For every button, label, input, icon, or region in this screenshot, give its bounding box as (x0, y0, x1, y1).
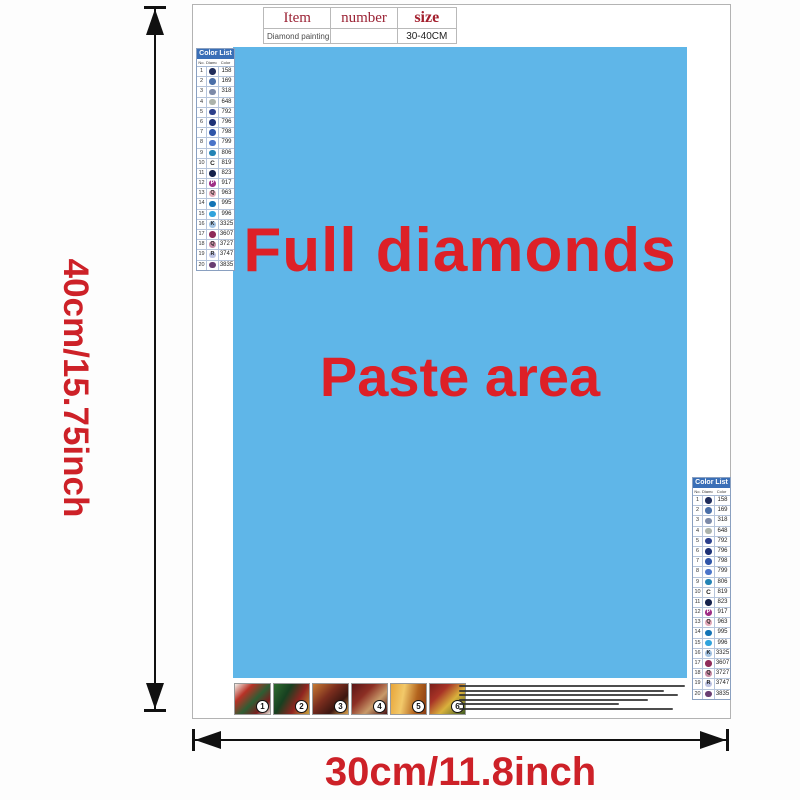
color-list-row: 2 169 (197, 77, 234, 87)
step-number-badge: 3 (334, 700, 347, 713)
color-row-number: 12 (197, 179, 207, 188)
diamond-symbol-icon: Q (703, 618, 715, 627)
color-row-number: 11 (197, 169, 207, 178)
color-row-number: 1 (197, 67, 207, 76)
instructions-text-block (459, 685, 687, 713)
dmc-color-code: 792 (715, 537, 730, 546)
color-row-number: 15 (693, 639, 703, 648)
dmc-color-code: 806 (219, 149, 234, 158)
color-list-row: 5 792 (693, 537, 730, 547)
diamond-symbol-icon: R (207, 250, 219, 259)
dmc-color-code: 799 (219, 138, 234, 147)
color-row-number: 8 (197, 138, 207, 147)
diamond-symbol-icon (207, 108, 219, 117)
diamond-symbol-icon: C (207, 159, 219, 168)
color-list-row: 9 806 (693, 578, 730, 588)
color-list-row: 14 995 (197, 199, 234, 209)
color-list-row: 8 799 (197, 138, 234, 148)
color-list-row: 3 318 (197, 87, 234, 97)
color-row-number: 20 (693, 690, 703, 699)
color-row-number: 5 (693, 537, 703, 546)
color-list-row: 19 R 3747 (197, 250, 234, 260)
color-list-row: 11 823 (693, 598, 730, 608)
item-table-data-row: Diamond painting 30-40CM (264, 29, 457, 44)
color-list-row: 6 796 (197, 118, 234, 128)
dmc-color-code: 158 (715, 496, 730, 505)
color-row-number: 5 (197, 108, 207, 117)
color-list-left: Color List No. Diamond Color 1 158 2 169… (196, 48, 235, 271)
color-row-number: 18 (693, 669, 703, 678)
diamond-symbol-icon (207, 87, 219, 96)
diamond-symbol-icon (207, 199, 219, 208)
diamond-symbol-icon (207, 98, 219, 107)
color-list-row: 14 995 (693, 628, 730, 638)
color-list-row: 16 K 3325 (693, 649, 730, 659)
dmc-color-code: 318 (715, 516, 730, 525)
dmc-color-code: 963 (715, 618, 730, 627)
color-list-right: Color List No. Diamond Color 1 158 2 169… (692, 477, 731, 700)
step-number-badge: 5 (412, 700, 425, 713)
dmc-color-code: 169 (219, 77, 234, 86)
dmc-color-code: 3747 (715, 679, 730, 688)
color-row-number: 9 (197, 149, 207, 158)
dmc-color-code: 3727 (219, 240, 234, 249)
col-color-label: Color (713, 488, 730, 495)
dmc-color-code: 3835 (219, 261, 234, 270)
color-row-number: 13 (693, 618, 703, 627)
dmc-color-code: 917 (219, 179, 234, 188)
dmc-color-code: 995 (219, 199, 234, 208)
step-thumbnail: 2 (273, 683, 310, 715)
col-no-label: No. (693, 488, 702, 495)
color-row-number: 15 (197, 210, 207, 219)
color-list-row: 1 158 (693, 496, 730, 506)
color-list-row: 18 Q 3727 (693, 669, 730, 679)
step-thumbnail: 1 (234, 683, 271, 715)
color-list-subheader: No. Diamond Color (693, 488, 730, 496)
color-list-row: 20 3835 (197, 261, 234, 270)
color-list-subheader: No. Diamond Color (197, 59, 234, 67)
dmc-color-code: 796 (715, 547, 730, 556)
color-list-row: 1 158 (197, 67, 234, 77)
color-list-row: 13 Q 963 (197, 189, 234, 199)
color-list-row: 6 796 (693, 547, 730, 557)
dmc-color-code: 158 (219, 67, 234, 76)
dmc-color-code: 799 (715, 567, 730, 576)
color-row-number: 17 (693, 659, 703, 668)
color-row-number: 11 (693, 598, 703, 607)
arrow-line (154, 9, 156, 709)
color-list-title: Color List (693, 478, 730, 488)
diamond-symbol-icon (207, 67, 219, 76)
diamond-symbol-icon (207, 210, 219, 219)
color-list-row: 12 P 917 (197, 179, 234, 189)
diamond-symbol-icon (703, 537, 715, 546)
color-row-number: 3 (693, 516, 703, 525)
diamond-symbol-icon: P (207, 179, 219, 188)
diamond-symbol-icon (703, 659, 715, 668)
color-list-row: 3 318 (693, 516, 730, 526)
diamond-symbol-icon (207, 118, 219, 127)
paste-area: Full diamonds Paste area (233, 47, 687, 678)
diamond-symbol-icon (207, 138, 219, 147)
color-row-number: 9 (693, 578, 703, 587)
color-list-row: 10 C 819 (693, 588, 730, 598)
item-size-table: Item number size Diamond painting 30-40C… (263, 7, 457, 44)
color-list-title: Color List (197, 49, 234, 59)
color-row-number: 4 (197, 98, 207, 107)
arrowhead-right-icon (700, 731, 726, 749)
diamond-symbol-icon (703, 639, 715, 648)
col-no-label: No. (197, 59, 206, 66)
diamond-symbol-icon (207, 128, 219, 137)
diamond-symbol-icon (207, 230, 219, 239)
color-row-number: 17 (197, 230, 207, 239)
instruction-step-thumbnails: 1 2 3 4 5 6 (234, 683, 466, 715)
color-row-number: 14 (197, 199, 207, 208)
color-row-number: 8 (693, 567, 703, 576)
item-name-cell: Diamond painting (264, 29, 331, 44)
color-row-number: 14 (693, 628, 703, 637)
color-list-row: 17 3607 (693, 659, 730, 669)
color-row-number: 3 (197, 87, 207, 96)
color-list-row: 20 3835 (693, 690, 730, 699)
diamond-symbol-icon (207, 149, 219, 158)
diamond-symbol-icon (703, 690, 715, 699)
dmc-color-code: 3325 (219, 220, 234, 229)
dmc-color-code: 648 (219, 98, 234, 107)
diamond-symbol-icon (207, 261, 219, 270)
diamond-symbol-icon (703, 496, 715, 505)
diamond-symbol-icon: P (703, 608, 715, 617)
dmc-color-code: 3835 (715, 690, 730, 699)
dmc-color-code: 798 (219, 128, 234, 137)
color-list-row: 11 823 (197, 169, 234, 179)
color-list-row: 19 R 3747 (693, 679, 730, 689)
col-diamond-label: Diamond (702, 488, 713, 495)
col-diamond-label: Diamond (206, 59, 217, 66)
dmc-color-code: 819 (219, 159, 234, 168)
color-row-number: 2 (197, 77, 207, 86)
diamond-symbol-icon (207, 77, 219, 86)
instruction-text-line (459, 685, 685, 687)
dmc-color-code: 792 (219, 108, 234, 117)
diamond-symbol-icon (703, 628, 715, 637)
instruction-text-line (459, 694, 678, 696)
step-number-badge: 1 (256, 700, 269, 713)
color-row-number: 20 (197, 261, 207, 270)
item-header-cell: Item (264, 8, 331, 29)
color-list-row: 18 Q 3727 (197, 240, 234, 250)
arrow-end-cap (144, 709, 166, 712)
color-list-row: 7 798 (197, 128, 234, 138)
color-row-number: 10 (197, 159, 207, 168)
color-list-row: 17 3607 (197, 230, 234, 240)
diamond-symbol-icon: K (703, 649, 715, 658)
diamond-symbol-icon: Q (703, 669, 715, 678)
diamond-symbol-icon (703, 557, 715, 566)
arrow-end-cap (726, 729, 729, 751)
color-list-row: 4 648 (693, 527, 730, 537)
width-dimension-label: 30cm/11.8inch (192, 750, 729, 795)
dmc-color-code: 917 (715, 608, 730, 617)
dmc-color-code: 648 (715, 527, 730, 536)
step-number-badge: 2 (295, 700, 308, 713)
color-row-number: 6 (693, 547, 703, 556)
height-dimension-arrow (144, 6, 166, 712)
color-list-row: 9 806 (197, 149, 234, 159)
color-list-row: 7 798 (693, 557, 730, 567)
color-list-row: 10 C 819 (197, 159, 234, 169)
dmc-color-code: 819 (715, 588, 730, 597)
color-list-row: 2 169 (693, 506, 730, 516)
color-row-number: 13 (197, 189, 207, 198)
color-row-number: 16 (197, 220, 207, 229)
paste-area-title-line1: Full diamonds (243, 215, 676, 286)
step-thumbnail: 4 (351, 683, 388, 715)
instruction-text-line (459, 703, 619, 705)
diamond-symbol-icon (703, 506, 715, 515)
dmc-color-code: 996 (715, 639, 730, 648)
color-row-number: 4 (693, 527, 703, 536)
color-list-row: 12 P 917 (693, 608, 730, 618)
color-row-number: 19 (197, 250, 207, 259)
color-list-row: 15 996 (197, 210, 234, 220)
dmc-color-code: 318 (219, 87, 234, 96)
diamond-symbol-icon (207, 169, 219, 178)
item-table-header-row: Item number size (264, 8, 457, 29)
dmc-color-code: 996 (219, 210, 234, 219)
item-number-cell (331, 29, 397, 44)
dmc-color-code: 3607 (715, 659, 730, 668)
color-row-number: 16 (693, 649, 703, 658)
diamond-symbol-icon (703, 598, 715, 607)
dmc-color-code: 3607 (219, 230, 234, 239)
diamond-symbol-icon: R (703, 679, 715, 688)
dmc-color-code: 796 (219, 118, 234, 127)
arrowhead-down-icon (146, 683, 164, 709)
color-list-row: 16 K 3325 (197, 220, 234, 230)
instruction-text-line (459, 690, 664, 692)
arrow-line (195, 739, 726, 741)
diamond-symbol-icon: C (703, 588, 715, 597)
dmc-color-code: 798 (715, 557, 730, 566)
color-row-number: 18 (197, 240, 207, 249)
instruction-text-line (459, 699, 648, 701)
step-thumbnail: 5 (390, 683, 427, 715)
diamond-symbol-icon (703, 547, 715, 556)
dmc-color-code: 3747 (219, 250, 234, 259)
height-dimension-label: 40cm/15.75inch (55, 188, 95, 588)
dmc-color-code: 995 (715, 628, 730, 637)
number-header-cell: number (331, 8, 397, 29)
color-row-number: 1 (693, 496, 703, 505)
dmc-color-code: 823 (715, 598, 730, 607)
size-header-cell: size (397, 8, 456, 29)
diamond-symbol-icon (703, 516, 715, 525)
color-list-row: 13 Q 963 (693, 618, 730, 628)
color-row-number: 12 (693, 608, 703, 617)
dmc-color-code: 806 (715, 578, 730, 587)
diamond-symbol-icon (703, 567, 715, 576)
dmc-color-code: 3727 (715, 669, 730, 678)
step-thumbnail: 3 (312, 683, 349, 715)
diamond-symbol-icon: K (207, 220, 219, 229)
color-list-row: 15 996 (693, 639, 730, 649)
diamond-symbol-icon: Q (207, 189, 219, 198)
diamond-symbol-icon: Q (207, 240, 219, 249)
paste-area-title-line2: Paste area (320, 344, 600, 409)
instruction-text-line (459, 708, 673, 710)
color-row-number: 7 (197, 128, 207, 137)
dmc-color-code: 823 (219, 169, 234, 178)
color-list-row: 5 792 (197, 108, 234, 118)
dmc-color-code: 3325 (715, 649, 730, 658)
col-color-label: Color (217, 59, 234, 66)
dmc-color-code: 963 (219, 189, 234, 198)
color-row-number: 6 (197, 118, 207, 127)
color-row-number: 7 (693, 557, 703, 566)
color-list-row: 4 648 (197, 98, 234, 108)
size-value-cell: 30-40CM (397, 29, 456, 44)
width-dimension-arrow (192, 729, 729, 751)
dmc-color-code: 169 (715, 506, 730, 515)
color-row-number: 10 (693, 588, 703, 597)
diamond-symbol-icon (703, 578, 715, 587)
color-list-row: 8 799 (693, 567, 730, 577)
color-row-number: 19 (693, 679, 703, 688)
product-diagram: Item number size Diamond painting 30-40C… (0, 0, 800, 800)
step-number-badge: 4 (373, 700, 386, 713)
color-row-number: 2 (693, 506, 703, 515)
diamond-symbol-icon (703, 527, 715, 536)
